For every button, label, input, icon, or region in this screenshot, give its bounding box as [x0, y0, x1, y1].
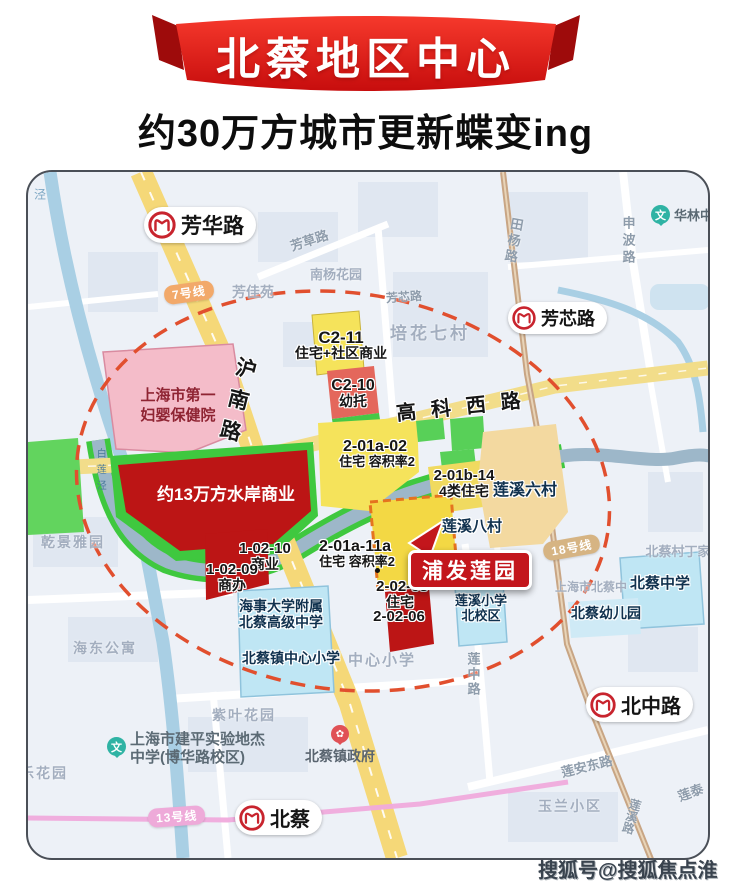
station-label: 北蔡	[270, 803, 310, 832]
parcel-c2-10-use: 幼托	[339, 394, 367, 410]
page: 北蔡地区中心 约30万方城市更新蝶变ing	[0, 0, 731, 888]
area-fangjia: 芳佳苑	[232, 285, 274, 301]
school-center-primary: 北蔡镇中心小学	[242, 651, 340, 667]
area-lianxi6: 莲溪六村	[493, 482, 557, 500]
school-haishi-1: 海事大学附属	[239, 599, 323, 615]
school-jianping-1: 上海市建平实验地杰	[130, 732, 265, 749]
government-pin-icon: ✿	[331, 725, 349, 743]
station-beizhonglu: 北中路	[586, 687, 693, 722]
river-label-jing: 泾	[32, 188, 45, 200]
area-nanyang: 南杨花园	[310, 268, 362, 283]
metro-logo-icon	[590, 692, 616, 718]
title-ribbon: 北蔡地区中心	[150, 12, 582, 98]
road-label-lianzhong: 莲中路	[465, 652, 480, 697]
education-icon: 文	[651, 205, 670, 224]
area-ziye: 紫叶花园	[212, 708, 276, 724]
metro-logo-icon	[148, 211, 176, 239]
project-badge: 浦发莲园	[408, 550, 532, 590]
planning-map: 沪南路 高科西路 芳草路 申波路 田杨路 莲中路 莲安东路 芳芯路 莲溪路 莲泰…	[26, 170, 710, 860]
station-label: 北中路	[621, 690, 681, 719]
parcel-dot	[375, 568, 380, 573]
school-lianxi-1: 莲溪小学	[455, 594, 507, 609]
area-gov: 北蔡镇政府	[305, 749, 375, 765]
pond	[650, 284, 708, 310]
area-lianxi8: 莲溪八村	[442, 519, 502, 536]
hospital-label-1: 上海市第一	[140, 388, 215, 405]
area-haidong: 海东公寓	[73, 641, 137, 657]
station-fanghua: 芳华路	[144, 207, 256, 243]
area-zhongxin: 中心小学	[348, 653, 416, 670]
page-subtitle: 约30万方城市更新蝶变ing	[0, 102, 731, 157]
station-label: 芳芯路	[541, 305, 595, 331]
hospital-label-2: 妇婴保健院	[140, 408, 215, 425]
river-label-bailianjing: 白莲泾	[94, 448, 105, 496]
station-beicai: 北蔡	[235, 800, 322, 835]
station-label: 芳华路	[181, 210, 244, 240]
school-lianxi-2: 北校区	[461, 609, 500, 624]
road-label-fangxin: 芳芯路	[386, 290, 423, 306]
metro-logo-icon	[512, 306, 536, 330]
area-beicai-zhong: 上海市北蔡中	[555, 581, 627, 594]
parcel-2-01b-14-use: 4类住宅	[439, 484, 489, 500]
area-peihua: 培花七村	[390, 324, 470, 343]
parcel-2-01a-11a-use: 住宅 容积率2	[319, 555, 395, 570]
school-haishi-2: 北蔡高级中学	[239, 615, 323, 631]
metro-logo-icon	[239, 805, 265, 831]
waterfront-label: 约13万方水岸商业	[157, 485, 295, 504]
school-jianping-2: 中学(博华路校区)	[130, 750, 245, 767]
watermark: 搜狐号@搜狐焦点淮南站	[538, 854, 731, 888]
parcel-c2-11-use: 住宅+社区商业	[295, 346, 387, 362]
line13-badge: 13号线	[147, 805, 206, 828]
area-lehuayuan: 乐花园	[26, 766, 68, 782]
parcel-1-02-09-use: 商办	[218, 578, 246, 594]
parcel-2-01a-02-use: 住宅 容积率2	[339, 455, 415, 470]
parcel-2-02-06-code: 2-02-06	[373, 609, 425, 626]
area-qianjing: 乾景雅园	[41, 535, 105, 551]
area-yulan: 玉兰小区	[538, 799, 602, 815]
road-label-shenbo: 申波路	[620, 216, 635, 267]
area-beicaicun: 北蔡村丁家	[645, 545, 710, 560]
school-kindergarten: 北蔡幼儿园	[571, 606, 641, 622]
area-hualin: 华林中	[674, 209, 710, 224]
page-title: 北蔡地区中心	[150, 26, 582, 84]
school-beicai-middle: 北蔡中学	[630, 576, 690, 593]
station-fangxin: 芳芯路	[508, 302, 607, 334]
education-icon: 文	[107, 737, 126, 756]
